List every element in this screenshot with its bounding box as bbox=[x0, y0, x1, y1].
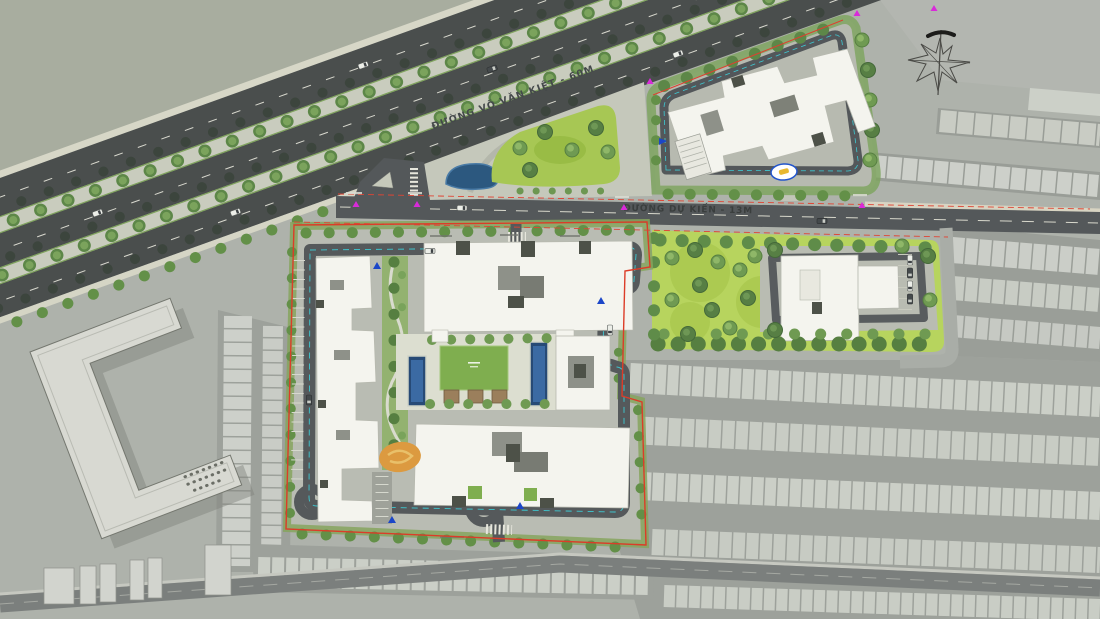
car-icon bbox=[907, 268, 912, 278]
rowhouse-strip bbox=[952, 288, 1100, 300]
rowhouse-strip bbox=[664, 596, 1100, 610]
annotation-mark bbox=[560, 235, 580, 237]
roof-notch bbox=[579, 241, 591, 254]
pool-water bbox=[533, 346, 545, 402]
tree-icon bbox=[733, 263, 747, 277]
tower-wing bbox=[432, 330, 448, 342]
tree-icon bbox=[589, 121, 604, 136]
roof-notch bbox=[456, 241, 470, 255]
tree-icon bbox=[748, 249, 762, 263]
main-site bbox=[286, 222, 650, 548]
car-icon bbox=[907, 294, 912, 304]
roof-notch bbox=[316, 300, 324, 308]
roof-core bbox=[330, 280, 344, 290]
roof-notch bbox=[320, 480, 328, 488]
marker-label-mark bbox=[346, 192, 362, 194]
marker-label-mark bbox=[408, 192, 422, 194]
tree-icon bbox=[921, 249, 936, 264]
facility-building-wing bbox=[858, 266, 899, 309]
lawn-label-mark bbox=[470, 366, 478, 367]
car-icon bbox=[607, 325, 612, 335]
roof-core bbox=[498, 266, 520, 290]
roof-core-dark bbox=[508, 296, 524, 308]
tree-icon bbox=[688, 243, 703, 258]
car-icon bbox=[306, 395, 311, 405]
house bbox=[80, 566, 96, 604]
tree-icon bbox=[705, 303, 720, 318]
car-icon bbox=[425, 248, 435, 253]
house bbox=[205, 545, 231, 595]
rowhouse-strip bbox=[952, 250, 1100, 262]
car-icon bbox=[817, 218, 827, 223]
roof-notch bbox=[452, 496, 466, 507]
tree-icon bbox=[681, 327, 696, 342]
tree-icon bbox=[741, 291, 756, 306]
tree-icon bbox=[895, 239, 909, 253]
roof-notch bbox=[812, 302, 822, 314]
tree-icon bbox=[665, 251, 679, 265]
roof-core bbox=[336, 430, 350, 440]
tree-icon bbox=[855, 33, 869, 47]
house bbox=[44, 568, 74, 604]
roof-core bbox=[334, 350, 350, 360]
roof-core-dark bbox=[506, 444, 520, 462]
tree-icon bbox=[768, 243, 783, 258]
community-park bbox=[652, 228, 952, 362]
roof-notch bbox=[318, 400, 326, 408]
car-icon bbox=[457, 205, 467, 210]
site-plan-canvas: ĐƯỜNG VÕ VĂN KIỆT - 60M bbox=[0, 0, 1100, 619]
tree-icon bbox=[861, 63, 876, 78]
tree-icon bbox=[565, 143, 579, 157]
tree-icon bbox=[538, 125, 553, 140]
annotation-mark bbox=[430, 235, 452, 237]
central-lawn bbox=[440, 346, 508, 390]
pavilions bbox=[444, 390, 507, 403]
car-icon bbox=[907, 281, 912, 291]
roof-core bbox=[800, 270, 820, 300]
rowhouse-strip bbox=[940, 121, 1100, 135]
roof-notch bbox=[521, 241, 535, 257]
tree-icon bbox=[513, 141, 527, 155]
tree-icon bbox=[665, 293, 679, 307]
roof-notch bbox=[540, 498, 554, 508]
lawn-label-mark bbox=[468, 362, 480, 364]
tree-icon bbox=[523, 163, 538, 178]
house bbox=[130, 560, 144, 600]
roof-garden bbox=[524, 488, 537, 501]
car-icon bbox=[907, 255, 912, 265]
house bbox=[100, 564, 116, 602]
tree-icon bbox=[723, 321, 737, 335]
marker-label-mark bbox=[615, 196, 629, 198]
roof-garden bbox=[468, 486, 482, 499]
rowhouse-strip bbox=[236, 316, 238, 566]
pool-water bbox=[411, 360, 423, 402]
roof-core-dark bbox=[574, 364, 586, 378]
tree-icon bbox=[601, 145, 615, 159]
marker-label-mark bbox=[853, 194, 867, 196]
roof-core bbox=[520, 276, 544, 298]
annotation-mark bbox=[500, 234, 518, 236]
tree-icon bbox=[693, 278, 708, 293]
site-plan-stage: ĐƯỜNG VÕ VĂN KIỆT - 60M bbox=[0, 0, 1100, 619]
tree-icon bbox=[923, 293, 937, 307]
tree-icon bbox=[711, 255, 725, 269]
rowhouse-strip bbox=[640, 486, 1100, 506]
tree-icon bbox=[863, 153, 877, 167]
house bbox=[148, 558, 162, 598]
tree-icon bbox=[768, 323, 783, 338]
